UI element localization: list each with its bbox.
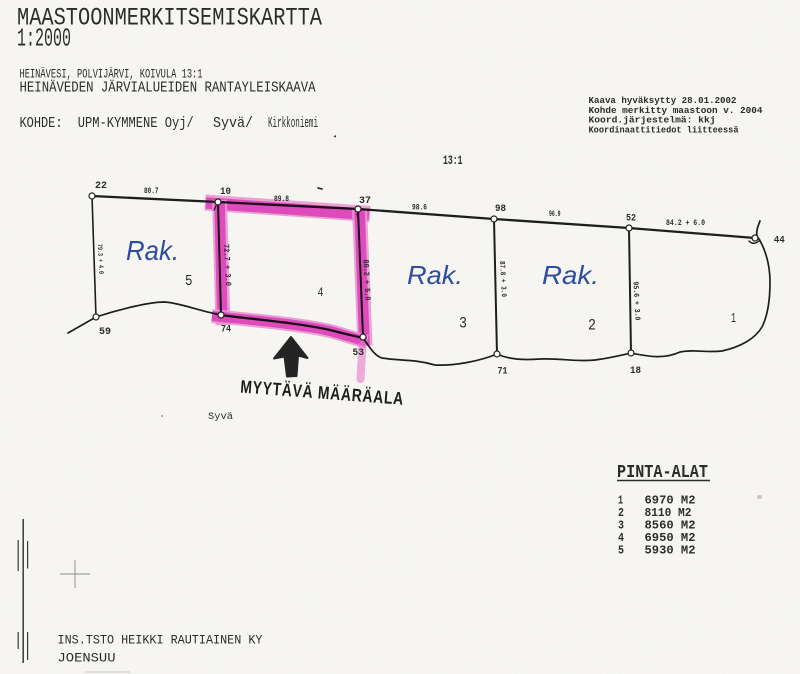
svg-text:3: 3 [459, 315, 467, 333]
svg-text:Kirkkoniemi: Kirkkoniemi [268, 116, 318, 132]
svg-text:4: 4 [318, 286, 324, 300]
svg-text:5: 5 [185, 273, 193, 290]
svg-text:Rak.: Rak. [542, 260, 599, 290]
svg-text:Koordinaattitiedot liitteessä: Koordinaattitiedot liitteessä [589, 125, 739, 136]
svg-text:5: 5 [618, 544, 624, 558]
svg-text:UPM-KYMMENE Oyj/: UPM-KYMMENE Oyj/ [78, 116, 194, 132]
svg-text:5930 M2: 5930 M2 [645, 544, 696, 558]
svg-text:Rak.: Rak. [126, 235, 179, 266]
svg-text:37: 37 [359, 196, 371, 207]
svg-text:79.3 + 4.0: 79.3 + 4.0 [95, 244, 105, 274]
svg-text:80.7: 80.7 [144, 187, 159, 196]
svg-text:HEINÄVEDEN JÄRVIALUEIDEN RANTA: HEINÄVEDEN JÄRVIALUEIDEN RANTAYLEISKAAVA [20, 79, 316, 97]
svg-text:74: 74 [221, 325, 231, 336]
svg-text:44: 44 [774, 236, 785, 247]
svg-text:52: 52 [626, 214, 636, 225]
svg-text:98: 98 [495, 204, 506, 215]
svg-text:Rak.: Rak. [407, 260, 463, 290]
svg-text:84.2 + 6.0: 84.2 + 6.0 [666, 219, 705, 228]
svg-text:22: 22 [95, 181, 107, 192]
svg-text:53: 53 [353, 348, 365, 359]
svg-text:59: 59 [99, 327, 111, 338]
svg-text:KOHDE:: KOHDE: [20, 116, 63, 132]
svg-text:18: 18 [630, 366, 641, 377]
svg-text:Syvä/: Syvä/ [213, 116, 253, 132]
svg-text:89.8: 89.8 [274, 195, 289, 204]
svg-text:INS.TSTO HEIKKI RAUTIAINEN KY: INS.TSTO HEIKKI RAUTIAINEN KY [58, 633, 263, 648]
svg-text:JOENSUU: JOENSUU [58, 651, 116, 666]
svg-text:10: 10 [220, 187, 231, 198]
svg-text:98.6: 98.6 [412, 204, 427, 213]
svg-text:2: 2 [588, 317, 596, 335]
svg-text:96.9: 96.9 [549, 210, 561, 219]
svg-text:1: 1 [731, 312, 736, 327]
svg-text:13:1: 13:1 [443, 153, 463, 168]
svg-text:71: 71 [498, 367, 508, 378]
svg-text:1:2000: 1:2000 [17, 24, 71, 54]
svg-text:Syvä: Syvä [208, 411, 233, 423]
